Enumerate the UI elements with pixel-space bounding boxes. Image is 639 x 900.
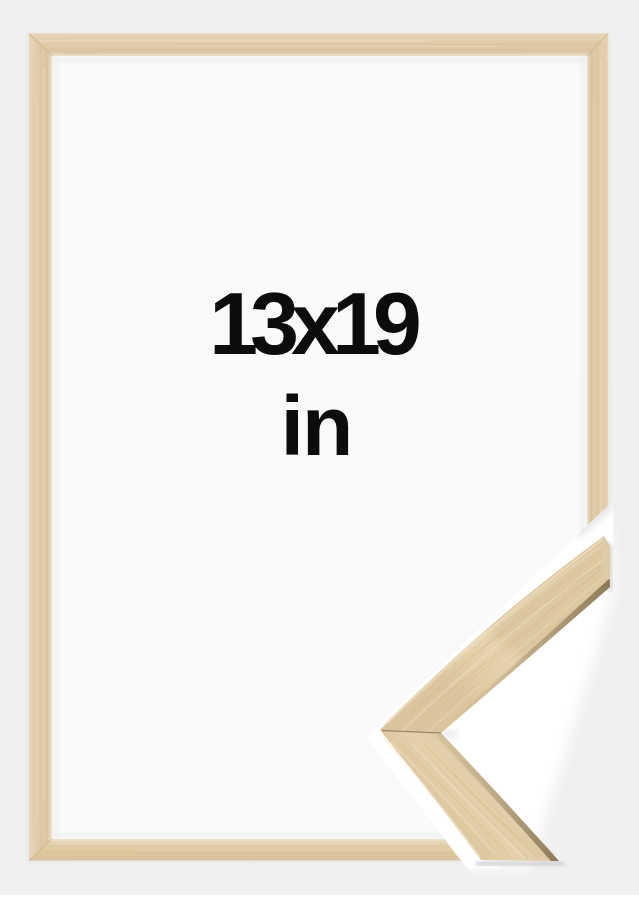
svg-text:in: in	[281, 379, 352, 473]
svg-text:13x19: 13x19	[209, 274, 419, 373]
